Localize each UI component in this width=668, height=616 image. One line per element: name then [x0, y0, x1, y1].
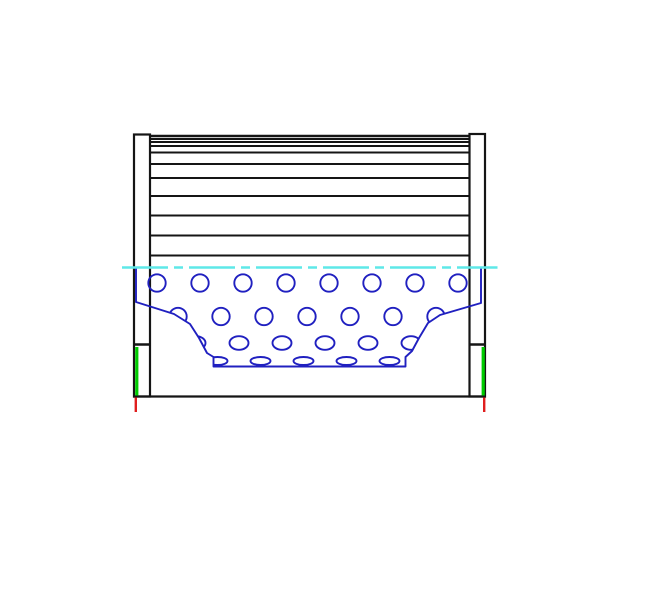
- perforation-hole: [208, 357, 228, 365]
- perforation-hole: [380, 357, 400, 365]
- perforation-hole: [402, 336, 421, 350]
- perforation-hole: [316, 336, 335, 350]
- perforation-hole: [449, 274, 466, 291]
- perforation-hole: [359, 336, 378, 350]
- perforation-hole: [320, 274, 337, 291]
- perforation-hole: [406, 274, 423, 291]
- perforation-hole: [191, 274, 208, 291]
- core-cutaway-boundary: [136, 268, 481, 367]
- perforation-hole: [234, 274, 251, 291]
- perforation-hole: [341, 308, 358, 325]
- perforation-hole: [212, 308, 229, 325]
- perforation-hole: [298, 308, 315, 325]
- perforation-hole: [230, 336, 249, 350]
- drawing-canvas: [0, 0, 668, 616]
- perforation-hole: [277, 274, 294, 291]
- perforation-hole: [273, 336, 292, 350]
- perforation-hole: [363, 274, 380, 291]
- core-perforations: [148, 274, 466, 365]
- perforation-hole: [337, 357, 357, 365]
- perforation-hole: [294, 357, 314, 365]
- perforation-hole: [251, 357, 271, 365]
- perforation-hole: [384, 308, 401, 325]
- filter-element-technical-drawing: [0, 0, 668, 616]
- perforation-hole: [255, 308, 272, 325]
